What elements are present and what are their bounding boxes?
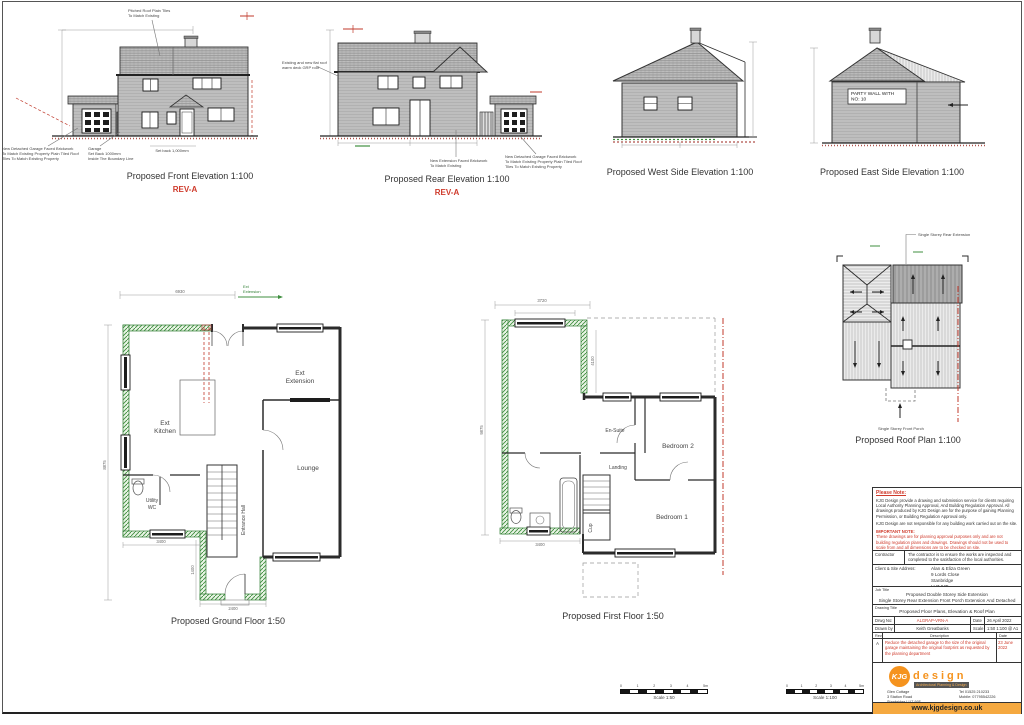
date-label: Date xyxy=(971,617,985,624)
front-elevation-caption: Proposed Front Elevation 1:100 xyxy=(127,171,254,181)
rear-elevation-figure: Existing and new flat roof warm deck GRP… xyxy=(280,0,580,205)
drawn-by: Keith Greatbanks xyxy=(895,625,971,632)
drwg-no: ALGRAP-VRN-A xyxy=(895,617,971,624)
dim-bottom: 3400 xyxy=(535,542,545,547)
new-wall-top xyxy=(123,325,212,331)
rear-extension-note: Single Storey Rear Extension xyxy=(918,232,970,237)
contact-details: Tel 01525 210233 Mobile: 07795542226 xyxy=(959,690,996,700)
dim-mid: 4100 xyxy=(590,356,595,366)
svg-text:warm deck GRP roof: warm deck GRP roof xyxy=(282,65,320,70)
room-lounge: Lounge xyxy=(297,465,319,472)
rev-description: Reduce the detached garage to the size o… xyxy=(883,639,997,662)
svg-text:WC: WC xyxy=(148,505,157,511)
svg-text:To Match Existing: To Match Existing xyxy=(430,163,461,168)
ground-floor-drawing: 6930 Ext Extension 8875 Ext Kitchen Ext … xyxy=(95,280,385,630)
revision-row: A Reduce the detached garage to the size… xyxy=(873,638,1021,662)
scale-value: 1:50 1:100 @ A1 xyxy=(985,625,1021,632)
chimney xyxy=(870,29,880,43)
notes-section: Please Note: KJG Design provide a drawin… xyxy=(873,488,1021,550)
svg-text:Extension: Extension xyxy=(243,289,261,294)
please-note-heading: Please Note: xyxy=(876,490,1018,497)
first-floor-drawing: 3720 9875 4100 En-Suite Bedroom 2 Landin… xyxy=(470,285,770,635)
west-elevation-figure: Proposed West Side Elevation 1:100 xyxy=(595,5,775,190)
svg-text:Tiles To Match Existing Proper: Tiles To Match Existing Property xyxy=(505,164,562,169)
sink xyxy=(530,513,550,527)
toilet xyxy=(511,511,521,524)
room-kitchen: Ext xyxy=(160,420,170,427)
front-elevation-figure: Pitched Roof Plain Tiles To Match Existi… xyxy=(0,0,280,200)
porch-below-outline xyxy=(583,563,638,597)
drwg-no-label: Drwg No: xyxy=(873,617,895,624)
dim-porch: 2400 xyxy=(228,606,238,611)
room-extension: Ext xyxy=(295,370,305,377)
job-title-label: Job Title xyxy=(875,588,889,593)
scale-ticks: 012345m xyxy=(786,684,864,688)
dim-left: 8875 xyxy=(102,460,107,470)
roof-plan-figure: Single Storey Rear Extension Single Stor… xyxy=(818,226,1018,461)
front-elevation-rev: REV-A xyxy=(173,185,198,194)
gate xyxy=(480,112,493,136)
contractor-label: Contractor xyxy=(873,551,905,564)
kjg-logo-icon: KJG xyxy=(889,666,910,687)
note-text-2: KJG Design are not responsible for any b… xyxy=(876,521,1018,526)
contractor-text: The contractor is to ensure the works ar… xyxy=(905,551,1021,564)
drawn-by-row: Drawn by Keith Greatbanks Scale 1:50 1:1… xyxy=(873,624,1021,632)
west-elevation-caption: Proposed West Side Elevation 1:100 xyxy=(607,167,753,177)
drawing-sheet: { "elevations": { "front": { "caption": … xyxy=(0,0,1024,725)
important-note-text: These drawings are for planning approval… xyxy=(876,534,1018,550)
client-row: Client & Site Address: Alan & Eliza Gree… xyxy=(873,564,1021,586)
room-utility: Utility xyxy=(146,498,159,504)
gable-roof xyxy=(613,42,743,81)
website-bar: www.kjgdesign.co.uk xyxy=(873,702,1021,714)
roof-plan-drawing: Single Storey Rear Extension Single Stor… xyxy=(818,226,1018,461)
drawing-title-row: Drawing Title Proposed Floor Plans, Elev… xyxy=(873,604,1021,616)
dim-bottom: 3400 xyxy=(156,539,166,544)
scale-bar-1-100: 012345m Scale 1:100 xyxy=(786,684,864,700)
house-roof xyxy=(120,47,248,75)
rev-date: 23 June 2022 xyxy=(997,639,1021,662)
dim-porch-side: 1400 xyxy=(190,565,195,575)
room-bedroom1: Bedroom 1 xyxy=(656,514,688,521)
svg-text:Inside The Boundary Line: Inside The Boundary Line xyxy=(88,156,134,161)
dim-top: 6930 xyxy=(175,289,185,294)
porch-outline xyxy=(886,388,915,401)
toilet xyxy=(133,481,143,495)
room-ensuite: En-Suite xyxy=(605,428,624,434)
scale-bar-graphic xyxy=(620,689,708,694)
stairs xyxy=(583,475,610,513)
rev-letter: A xyxy=(873,639,883,662)
garage-roof xyxy=(68,96,120,104)
scale-bar-label: Scale 1:100 xyxy=(786,695,864,700)
rear-extension-flat-roof xyxy=(893,265,962,303)
setback-note-2: Set back 1,000mm xyxy=(155,148,189,153)
room-hall: Entrance Hall xyxy=(241,505,247,535)
drawing-number-row: Drwg No: ALGRAP-VRN-A Date 26 April 2022 xyxy=(873,616,1021,624)
scale-bar-label: Scale 1:50 xyxy=(620,695,708,700)
svg-text:Tiles To Match Existing Proper: Tiles To Match Existing Property xyxy=(2,156,59,161)
client-label: Client & Site Address: xyxy=(875,566,916,571)
room-landing: Landing xyxy=(609,465,627,471)
east-elevation-figure: PARTY WALL WITH NO: 10 Proposed East Sid… xyxy=(800,5,1015,190)
east-elevation-caption: Proposed East Side Elevation 1:100 xyxy=(820,167,964,177)
chimney-plan xyxy=(903,340,912,349)
job-title-row: Job Title Proposed Double Storey Side Ex… xyxy=(873,586,1021,604)
dim-top: 3720 xyxy=(537,298,547,303)
left-roof xyxy=(843,322,891,380)
ground-floor-caption: Proposed Ground Floor 1:50 xyxy=(171,616,285,626)
garage-roof xyxy=(490,96,536,104)
scale-bar-graphic xyxy=(786,689,864,694)
east-elevation-drawing: PARTY WALL WITH NO: 10 Proposed East Sid… xyxy=(800,5,1015,190)
drawing-title-label: Drawing Title xyxy=(875,606,897,611)
roof-plan-caption: Proposed Roof Plan 1:100 xyxy=(855,435,961,445)
logo-tagline: Architectural Planning & Design xyxy=(914,682,969,688)
rear-elevation-caption: Proposed Rear Elevation 1:100 xyxy=(384,174,509,184)
title-block: Please Note: KJG Design provide a drawin… xyxy=(872,487,1022,713)
office-address: Glen Cottage 3 Station Road Stanbridge L… xyxy=(887,690,921,702)
new-wall-left xyxy=(502,320,508,534)
ground-floor-figure: 6930 Ext Extension 8875 Ext Kitchen Ext … xyxy=(95,280,385,630)
svg-text:NO: 10: NO: 10 xyxy=(851,97,867,103)
chimney xyxy=(691,29,700,43)
kitchen-island xyxy=(180,380,215,435)
first-floor-figure: 3720 9875 4100 En-Suite Bedroom 2 Landin… xyxy=(470,285,770,635)
svg-text:Extension: Extension xyxy=(286,378,315,385)
scale-bar-1-50: 012345m Scale 1:50 xyxy=(620,684,708,700)
scale-ticks: 012345m xyxy=(620,684,708,688)
room-cup: Cup xyxy=(588,523,594,532)
contractor-row: Contractor The contractor is to ensure t… xyxy=(873,550,1021,564)
front-elevation-drawing: Pitched Roof Plain Tiles To Match Existi… xyxy=(0,0,280,200)
first-floor-caption: Proposed First Floor 1:50 xyxy=(562,611,664,621)
drawn-by-label: Drawn by xyxy=(873,625,895,632)
note-text-1: KJG Design provide a drawing and submiss… xyxy=(876,498,1018,520)
dim-left: 9875 xyxy=(479,425,484,435)
rear-elevation-rev: REV-A xyxy=(435,188,460,197)
rear-elevation-drawing: Existing and new flat roof warm deck GRP… xyxy=(280,0,580,205)
room-bedroom2: Bedroom 2 xyxy=(662,443,694,450)
front-porch-note: Single Storey Front Porch xyxy=(878,426,924,431)
west-elevation-drawing: Proposed West Side Elevation 1:100 xyxy=(595,5,775,190)
party-wall-text: PARTY WALL WITH xyxy=(851,91,895,97)
logo-section: KJG design Architectural Planning & Desi… xyxy=(873,662,1021,702)
scale-label: Scale xyxy=(971,625,985,632)
date-value: 26 April 2022 xyxy=(985,617,1021,624)
svg-text:Kitchen: Kitchen xyxy=(154,428,176,435)
client-address: Alan & Eliza Green 9 Lords Close Stanbri… xyxy=(931,565,1021,586)
svg-text:To Match Existing: To Match Existing xyxy=(128,13,159,18)
